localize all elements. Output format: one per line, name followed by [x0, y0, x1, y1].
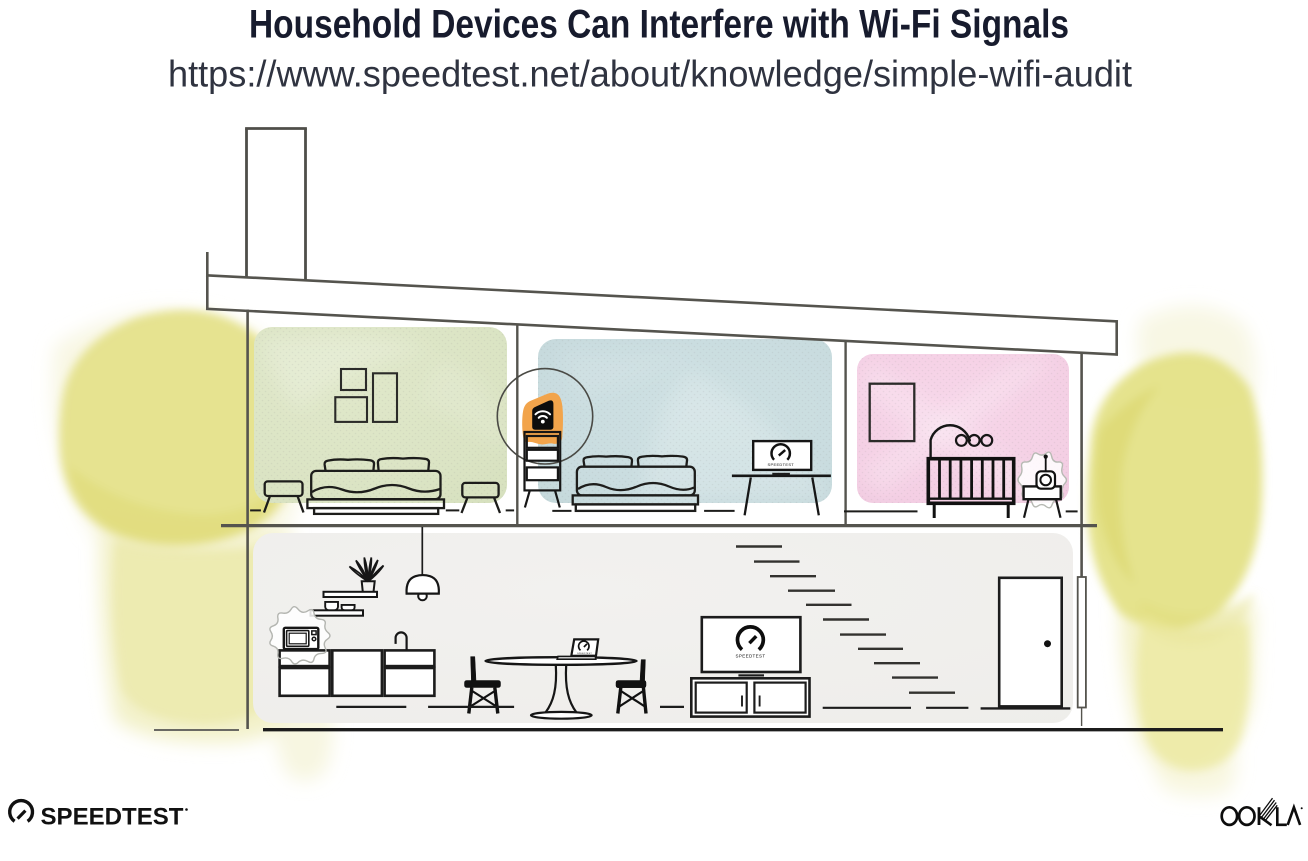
svg-text:https://www.speedtest.net/abou: https://www.speedtest.net/about/knowledg… [168, 53, 1133, 95]
svg-text:Household Devices Can Interfer: Household Devices Can Interfere with Wi-… [249, 3, 1069, 47]
svg-text:SPEEDTEST: SPEEDTEST [768, 462, 795, 467]
svg-text:SPEEDTEST: SPEEDTEST [736, 654, 766, 659]
svg-text:SPEEDTEST: SPEEDTEST [41, 804, 184, 831]
svg-text:SPEEDTEST: SPEEDTEST [577, 653, 592, 655]
